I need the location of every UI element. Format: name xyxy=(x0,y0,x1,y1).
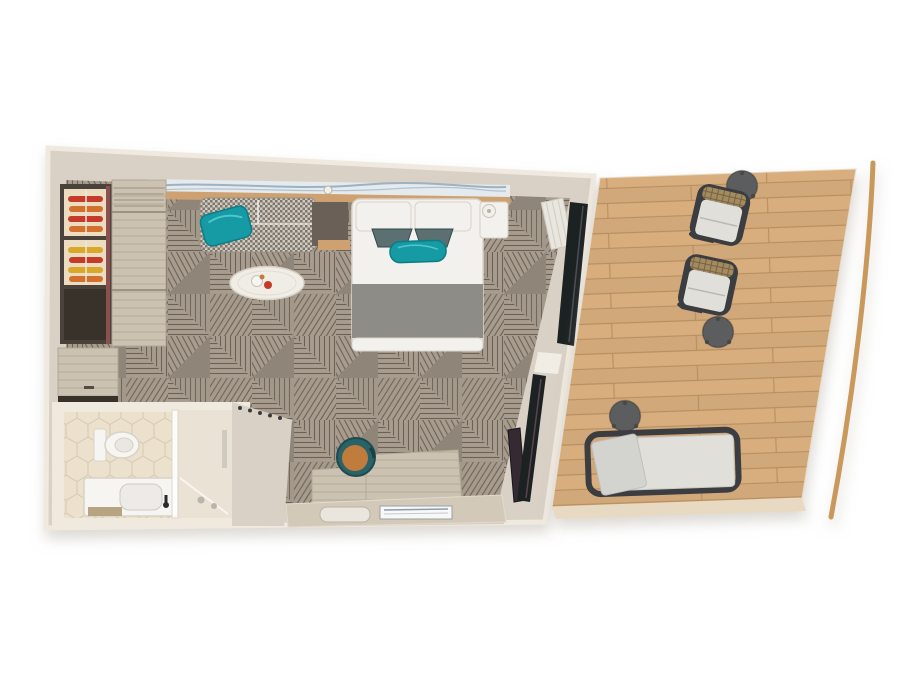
ceiling-lamp-icon xyxy=(324,186,332,194)
floor-plan-render xyxy=(0,0,915,686)
coffee-table xyxy=(230,267,304,300)
shower-glass xyxy=(172,410,178,518)
cabin-area xyxy=(46,148,594,528)
window-sill xyxy=(534,352,562,374)
bathroom-area xyxy=(54,404,248,526)
bed-foot xyxy=(352,338,483,351)
pillow xyxy=(415,202,471,231)
side-console xyxy=(312,202,350,250)
cup-icon xyxy=(260,275,265,280)
floor-plan-svg xyxy=(0,0,915,686)
shower-column xyxy=(222,430,227,468)
side-table xyxy=(610,401,641,432)
toilet xyxy=(94,429,139,461)
pillow xyxy=(356,202,411,231)
shelf-clothes xyxy=(68,241,103,284)
sun-lounger xyxy=(587,429,739,496)
sofa xyxy=(199,198,316,252)
teal-throw-pillow xyxy=(390,240,447,263)
desk-chair xyxy=(337,438,375,476)
fruit-icon xyxy=(264,281,272,289)
open-shelf-unit xyxy=(60,184,112,344)
entry-area xyxy=(232,402,292,526)
nightstand xyxy=(480,202,508,238)
double-bed xyxy=(352,199,483,351)
lower-cabinet xyxy=(58,348,118,405)
vanity-sink xyxy=(84,478,178,516)
bed-runner xyxy=(352,284,483,338)
desk-tray xyxy=(320,507,370,522)
shower xyxy=(172,410,232,518)
bath-mat xyxy=(88,507,122,516)
side-table xyxy=(703,317,734,348)
wardrobe xyxy=(112,180,166,346)
magazine xyxy=(380,506,452,519)
